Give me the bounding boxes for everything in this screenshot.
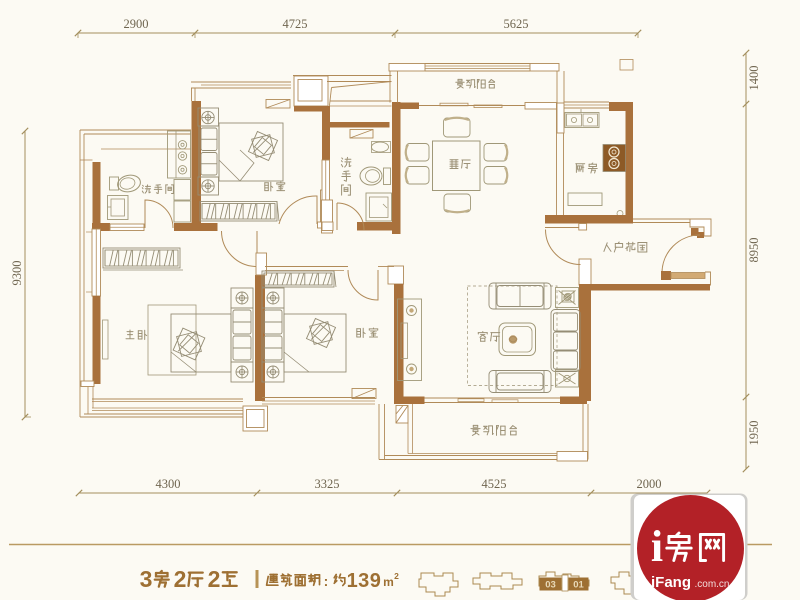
svg-text:2: 2	[174, 566, 187, 592]
svg-text:2: 2	[394, 571, 399, 581]
svg-text:8950: 8950	[747, 238, 761, 263]
svg-text:4300: 4300	[156, 477, 181, 491]
svg-text:2: 2	[208, 566, 221, 592]
svg-text:3: 3	[140, 566, 153, 592]
svg-text:.com.cn: .com.cn	[694, 579, 729, 590]
svg-text:9300: 9300	[10, 261, 24, 286]
svg-text:03: 03	[545, 580, 556, 591]
svg-text:m: m	[383, 575, 394, 589]
svg-text:1400: 1400	[747, 66, 761, 91]
svg-text::: :	[324, 573, 329, 589]
svg-text:4725: 4725	[283, 17, 308, 31]
svg-text:2900: 2900	[124, 17, 149, 31]
svg-text:2000: 2000	[637, 477, 662, 491]
svg-text:5625: 5625	[504, 17, 529, 31]
svg-text:i: i	[651, 522, 663, 571]
svg-text:iFang: iFang	[651, 574, 691, 591]
svg-text:4525: 4525	[482, 477, 507, 491]
svg-text:1950: 1950	[747, 421, 761, 446]
svg-text:139: 139	[347, 570, 382, 592]
svg-text:01: 01	[573, 580, 584, 591]
svg-text:3325: 3325	[315, 477, 340, 491]
